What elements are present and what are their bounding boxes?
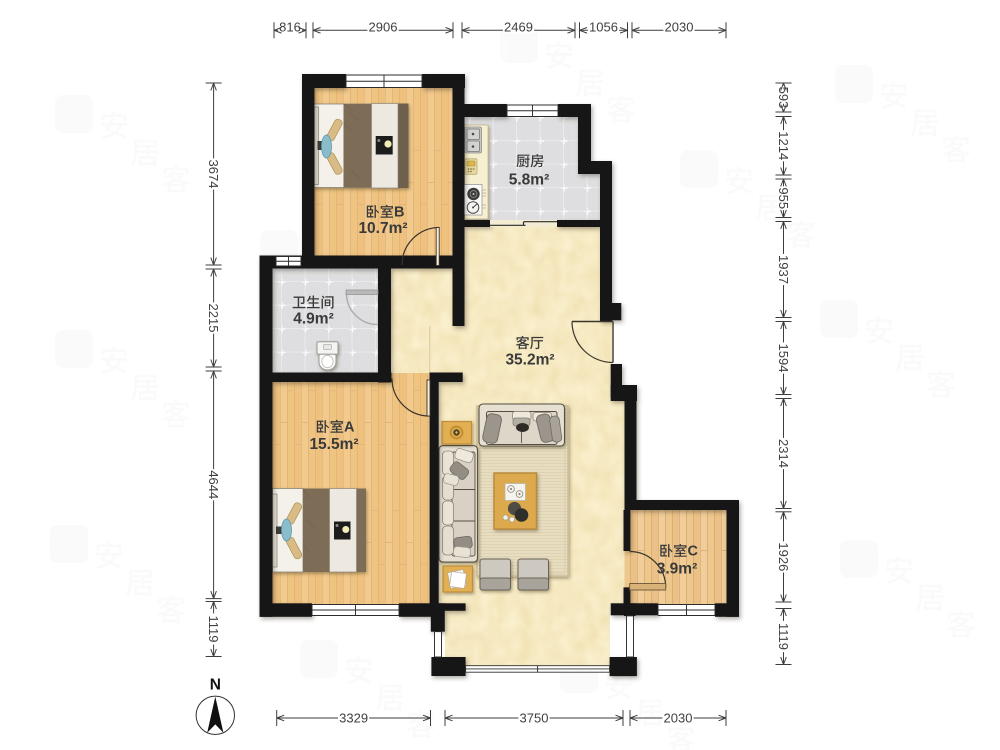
svg-text:3.9m²: 3.9m²: [657, 561, 698, 578]
svg-text:A: A: [344, 419, 355, 435]
svg-text:2030: 2030: [664, 711, 693, 726]
svg-text:2030: 2030: [665, 20, 694, 35]
svg-text:816: 816: [279, 20, 301, 35]
svg-text:1119: 1119: [206, 616, 221, 643]
svg-text:4.9m²: 4.9m²: [293, 311, 334, 328]
svg-text:1926: 1926: [776, 542, 791, 571]
svg-text:4644: 4644: [206, 470, 221, 499]
svg-text:1594: 1594: [776, 344, 791, 373]
svg-text:955: 955: [776, 187, 791, 209]
svg-text:5.8m²: 5.8m²: [509, 172, 550, 189]
svg-text:2469: 2469: [504, 20, 533, 35]
svg-text:1056: 1056: [589, 20, 618, 35]
svg-text:2906: 2906: [369, 20, 398, 35]
svg-text:15.5m²: 15.5m²: [309, 436, 358, 453]
svg-text:593: 593: [776, 87, 791, 109]
svg-text:2215: 2215: [206, 304, 221, 333]
svg-text:B: B: [394, 204, 404, 220]
svg-text:3674: 3674: [206, 160, 221, 189]
svg-text:3329: 3329: [339, 711, 368, 726]
svg-text:1119: 1119: [776, 623, 791, 650]
svg-text:2314: 2314: [776, 439, 791, 468]
svg-text:3750: 3750: [520, 711, 549, 726]
svg-text:C: C: [688, 544, 699, 560]
svg-text:1214: 1214: [776, 131, 791, 160]
svg-text:10.7m²: 10.7m²: [358, 220, 407, 237]
svg-text:N: N: [210, 677, 221, 694]
svg-text:1937: 1937: [776, 255, 791, 284]
svg-text:35.2m²: 35.2m²: [505, 352, 554, 369]
